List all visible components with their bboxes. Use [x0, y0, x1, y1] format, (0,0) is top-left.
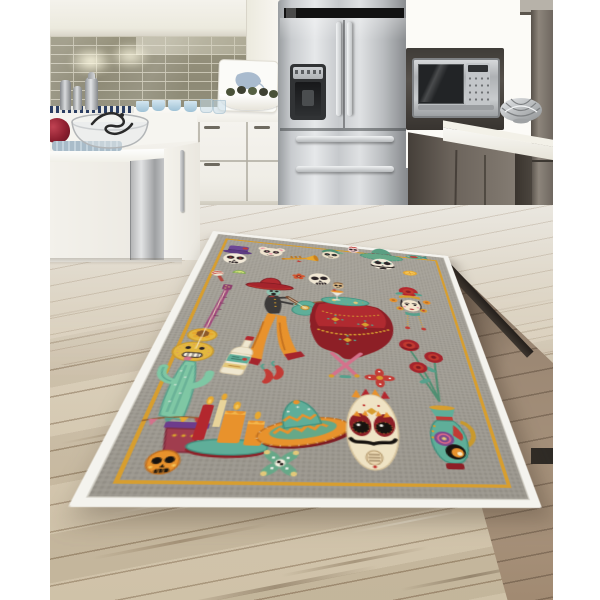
- fruit: [248, 87, 257, 95]
- refrigerator-handle: [336, 22, 341, 116]
- refrigerator-trim-notch: [286, 8, 296, 18]
- fruit: [259, 88, 268, 96]
- handle-slot: [204, 163, 220, 166]
- screenshot-stage: [0, 0, 600, 600]
- tile-bright-band: [136, 37, 246, 55]
- silver-wire-bowl: [497, 90, 545, 126]
- under-cabinet-light-glow: [108, 42, 152, 70]
- fruit: [226, 88, 235, 96]
- cabinet-seam: [198, 160, 280, 162]
- freezer-drawer-handle: [296, 136, 394, 142]
- glass-cup: [213, 100, 226, 114]
- handle-slot: [254, 126, 270, 129]
- glass-cup: [200, 99, 213, 113]
- column-kick: [531, 448, 553, 464]
- freezer-drawer-handle: [296, 166, 394, 172]
- drawer-seam: [531, 160, 553, 162]
- island-door-handle: [180, 150, 184, 212]
- dishwasher-panel: [130, 158, 166, 260]
- refrigerator-handle: [347, 22, 352, 116]
- cabinet-seam: [246, 122, 248, 206]
- fruit: [237, 86, 246, 94]
- refrigerator-top-trim: [284, 8, 404, 18]
- dispenser-buttons: [295, 70, 321, 74]
- microwave-handle: [418, 105, 494, 110]
- dispenser-lever: [302, 90, 314, 106]
- refrigerator-drawer-gap: [280, 128, 408, 131]
- glass-bowl: [62, 106, 154, 152]
- microwave-reflection: [418, 64, 462, 102]
- fruit: [269, 90, 278, 98]
- microwave-display: [468, 65, 488, 72]
- kitchen-photo: [50, 0, 553, 600]
- microwave-buttons: [467, 75, 489, 103]
- blue-cup: [184, 101, 197, 112]
- island-shadow: [50, 258, 182, 265]
- cocktail-shaker-cap: [88, 72, 95, 79]
- handle-slot: [204, 126, 220, 129]
- upper-cabinets: [50, 0, 248, 38]
- refrigerator-door-seam: [343, 20, 345, 128]
- blue-cup: [168, 100, 181, 111]
